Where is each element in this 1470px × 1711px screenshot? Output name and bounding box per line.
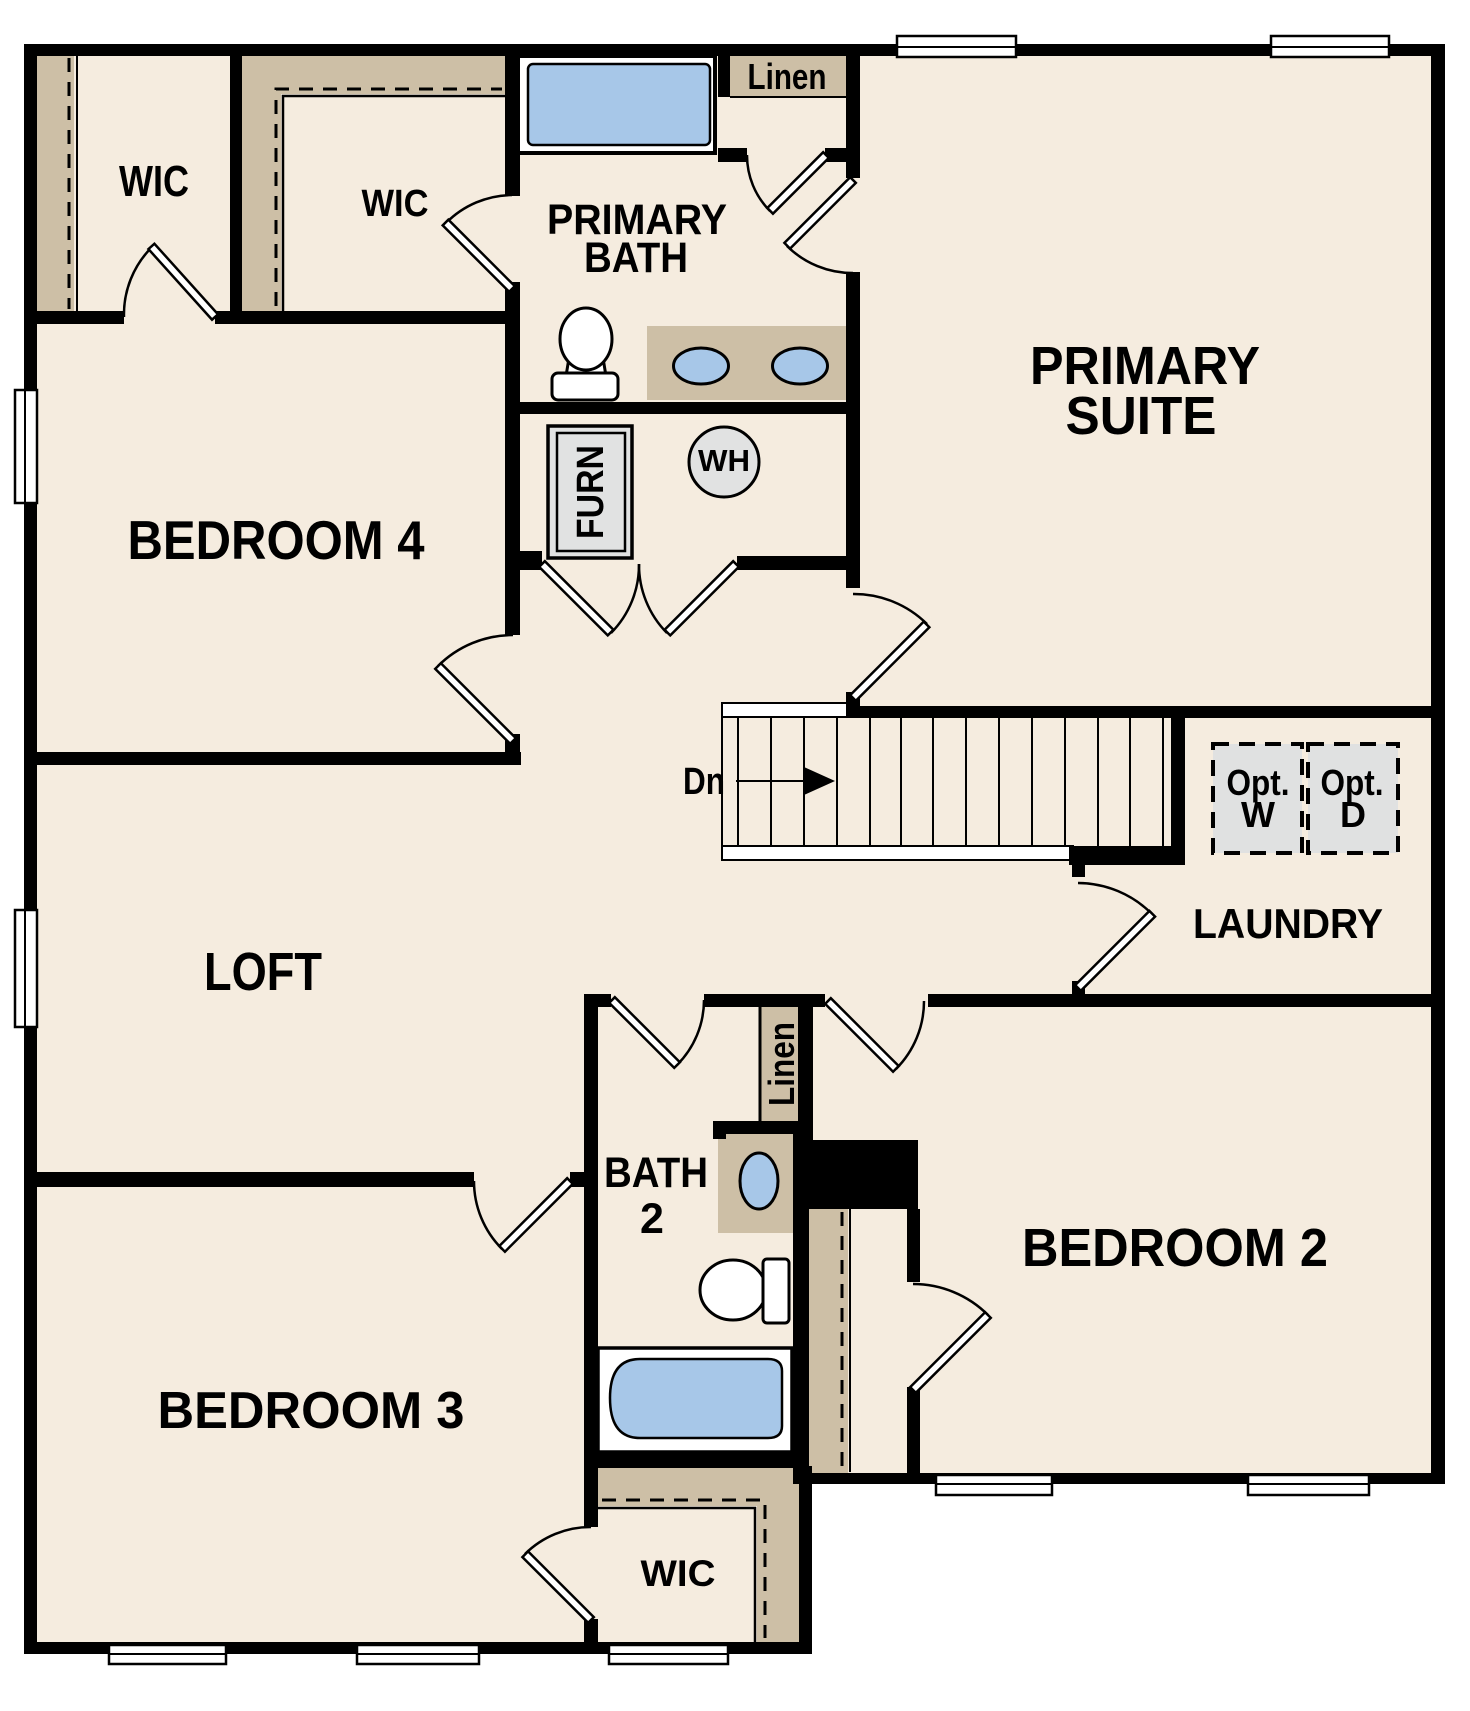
svg-text:LOFT: LOFT [204,942,322,1002]
svg-text:BEDROOM 3: BEDROOM 3 [158,1382,465,1440]
svg-text:WIC: WIC [119,157,189,206]
svg-text:W: W [1241,794,1275,835]
svg-text:2: 2 [640,1195,664,1243]
svg-text:BEDROOM 2: BEDROOM 2 [1022,1218,1328,1278]
svg-text:WIC: WIC [362,183,429,225]
svg-text:Linen: Linen [761,1022,802,1106]
svg-text:BEDROOM 4: BEDROOM 4 [128,509,425,571]
svg-text:Linen: Linen [748,56,827,97]
svg-text:LAUNDRY: LAUNDRY [1193,900,1383,947]
svg-text:FURN: FURN [570,445,612,539]
svg-text:Dn: Dn [683,761,725,803]
svg-text:D: D [1340,794,1366,835]
svg-text:WIC: WIC [641,1553,716,1594]
svg-text:SUITE: SUITE [1066,386,1217,446]
svg-text:BATH: BATH [604,1149,708,1197]
svg-text:BATH: BATH [584,234,688,282]
svg-text:WH: WH [698,443,750,478]
